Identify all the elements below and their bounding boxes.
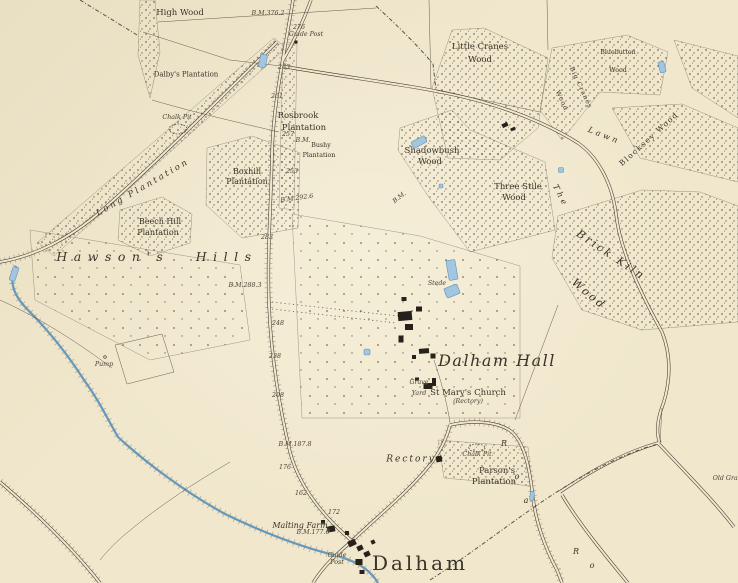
map-label-rectory-48: (Rectory) [453,399,483,405]
map-labels-layer: High WoodB.M.376.2276Guide PostDalby's P… [0,0,738,583]
map-label-stede-43: Stede [428,281,446,287]
map-label-b-m-288-3-23: B.M.288.3 [228,283,261,289]
map-label-brick-kiln-41: Brick Kiln [575,228,648,282]
map-label-plantation-52: Plantation [472,478,516,487]
map-label-wood-30: Wood [609,68,627,74]
map-label-guide-post-3: Guide Post [289,32,323,38]
map-label-162-55: 162 [295,491,307,497]
map-label-wood-28: Wood [468,56,492,65]
map-label-lawn-35: Lawn [587,126,622,146]
map-label-b-m-376-2-1: B.M.376.2 [251,11,284,17]
map-label-hawson-s-hills-21: Hawson's Hills [56,251,257,264]
map-label-wood-40: Wood [502,194,526,203]
map-viewport[interactable]: High WoodB.M.376.2276Guide PostDalby's P… [0,0,738,583]
map-label-the-34: The [551,183,569,208]
map-label-beech-hill-19: Beech Hill [139,218,181,226]
map-label-261-6: 261 [271,94,283,100]
map-label-208-26: 208 [272,393,284,399]
map-label-high-wood-0: High Wood [156,9,204,18]
map-label-post-60: Post [330,560,344,566]
map-label-chalk-pit-50: Chalk Pit [462,452,491,458]
map-label-238-25: 238 [269,354,281,360]
map-label-o-65: o [515,473,520,481]
map-label-pump-62: Pump [95,362,113,368]
map-label-wood-32: Wood [554,90,569,112]
map-label-b-m-11: B.M. [295,138,310,144]
map-label-little-cranes-27: Little Cranes [452,43,508,52]
map-label-big-cranes-31: Big Cranes [568,66,593,110]
map-label-rectory-49: Rectory [386,456,436,465]
map-label-plantation-17: Plantation [226,178,268,186]
map-label-b-m-177-6-58: B.M.177.6 [296,530,329,536]
map-label-r-67: R [573,548,579,556]
map-label-chalk-pit-9: Chalk Pit [162,115,191,121]
map-label-248-24: 248 [272,321,284,327]
map-label-yard-46: Yard [412,391,426,397]
map-label-grave-45: Grave [409,380,428,386]
map-label-253-14: 253 [286,169,298,175]
map-label-st-mary-s-church-47: St Mary's Church [430,389,506,398]
map-label-plantation-20: Plantation [137,229,179,237]
map-label-a-66: a [524,497,529,505]
map-label-shadowbush-36: Shadowbush [405,147,460,156]
map-label-257-10: 257 [282,132,294,138]
map-label-263-5: 263 [278,65,290,71]
map-label-parson-s-51: Parson's [479,467,515,476]
map-label-dalham-hall-44: Dalham Hall [438,353,556,369]
map-label-three-stile-39: Three Stile [494,183,542,192]
map-label-r-64: R [501,440,507,448]
map-label-long-plantation-18: Long Plantation [95,158,191,218]
map-label-o-68: o [590,562,595,570]
map-label-wood-37: Wood [418,158,442,167]
map-label-b-m-292-6-15: B.M.292.6 [280,194,314,205]
map-label-old-grav-63: Old Grav [713,476,738,482]
map-label-rosbrook-7: Rosbrook [278,112,319,121]
map-label-bushy-12: Bushy [311,143,331,149]
map-label-b-m-38: B.M. [392,191,408,205]
map-label-172-56: 172 [328,510,340,516]
map-label-dalham-61: Dalham [372,553,468,573]
map-label-boxhill-16: Boxhill [233,168,261,176]
map-label-plantation-13: Plantation [303,153,336,159]
map-label-176-54: 176 [279,465,291,471]
map-label-bluebutton-29: Bluebutton [600,50,635,56]
map-label-283-22: 283 [261,235,273,241]
map-label-wood-42: Wood [570,277,608,312]
map-label-b-m-187-8-53: B.M.187.8 [278,442,311,448]
map-label-dalby-s-plantation-4: Dalby's Plantation [154,72,219,79]
map-label-blocksey-wood-33: Blocksey Wood [618,111,680,168]
